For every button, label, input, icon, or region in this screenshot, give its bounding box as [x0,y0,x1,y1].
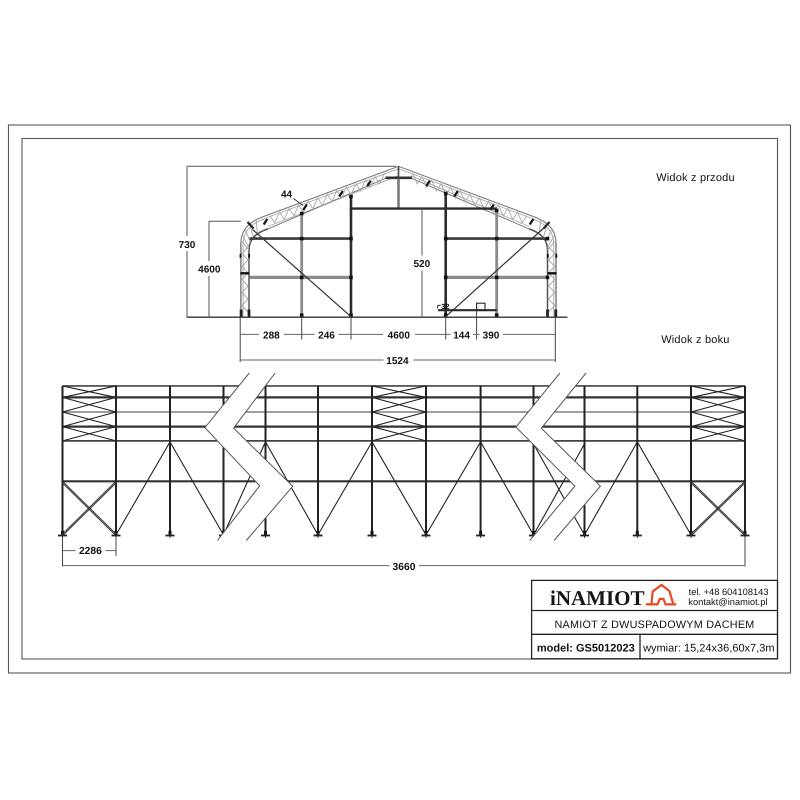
svg-text:1524: 1524 [386,356,409,367]
svg-text:4600: 4600 [388,331,411,342]
svg-text:4600: 4600 [198,265,221,276]
svg-text:144: 144 [453,331,470,342]
svg-text:iNAMIOT: iNAMIOT [550,586,645,610]
svg-text:3660: 3660 [393,562,416,573]
svg-text:wymiar: 15,24x36,60x7,3m: wymiar: 15,24x36,60x7,3m [642,643,774,655]
svg-text:tel. +48 604108143: tel. +48 604108143 [689,587,769,597]
svg-text:390: 390 [483,331,500,342]
svg-text:520: 520 [413,259,430,270]
svg-text:Widok z przodu: Widok z przodu [656,172,735,184]
svg-text:730: 730 [179,240,196,251]
svg-text:2286: 2286 [79,546,102,557]
svg-text:kontakt@inamiot.pl: kontakt@inamiot.pl [688,597,767,607]
svg-text:44: 44 [281,190,293,201]
svg-text:246: 246 [318,331,335,342]
svg-text:model: GS5012023: model: GS5012023 [537,643,635,655]
svg-text:Widok z boku: Widok z boku [661,334,729,346]
svg-text:288: 288 [263,331,280,342]
svg-text:NAMIOT Z DWUSPADOWYM DACHEM: NAMIOT Z DWUSPADOWYM DACHEM [554,619,754,631]
svg-text:32: 32 [441,302,449,311]
